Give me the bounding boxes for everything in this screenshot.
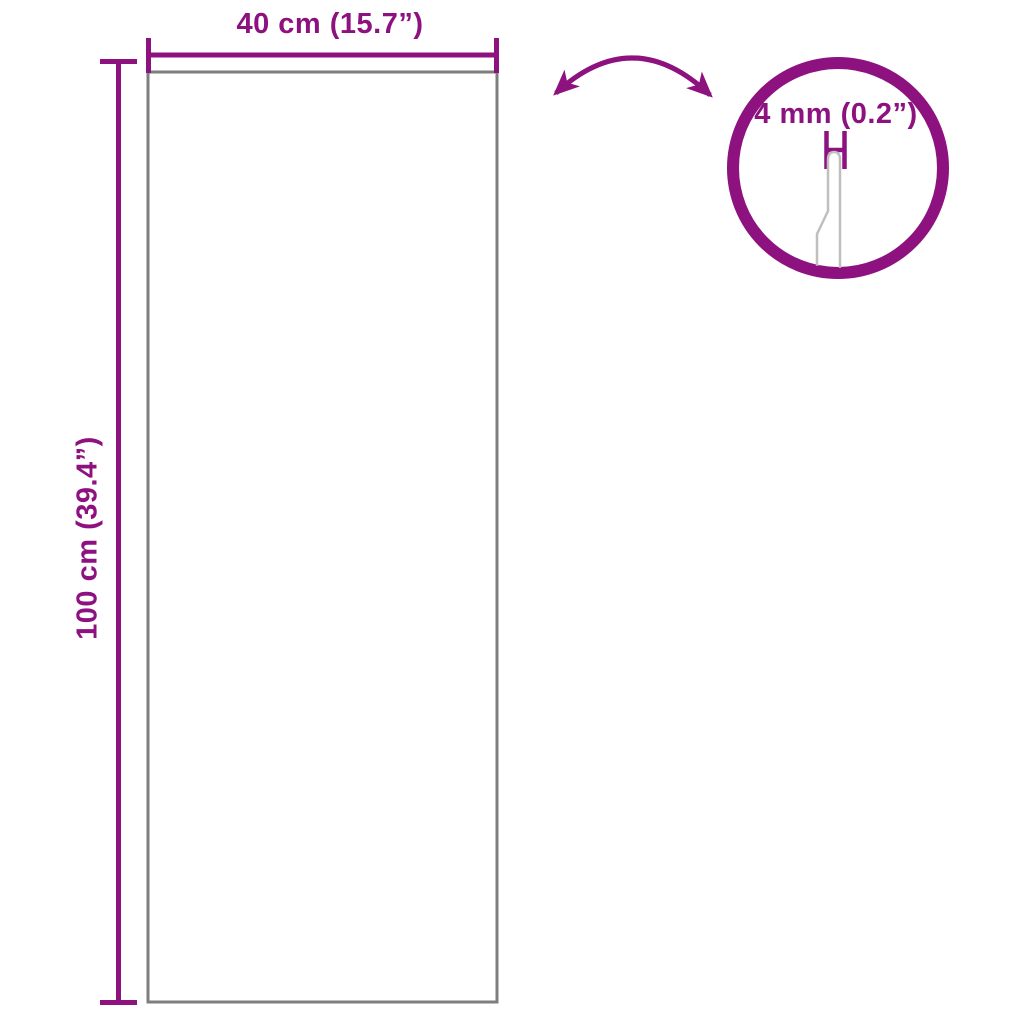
- edge-cross-section: [817, 152, 840, 280]
- thickness-dimension-label: 4 mm (0.2”): [754, 98, 917, 131]
- product-dimension-diagram: 40 cm (15.7”) 100 cm (39.4”) 4 mm (0.2”): [0, 0, 1024, 1024]
- curved-double-arrow-icon: [556, 58, 710, 95]
- product-outline-rect: [148, 72, 497, 1002]
- height-dimension-line: [100, 59, 137, 1005]
- width-dimension-line: [146, 38, 499, 73]
- height-dimension-label: 100 cm (39.4”): [72, 436, 105, 640]
- diagram-canvas: [0, 0, 1024, 1024]
- edge-cross-section-profile: [817, 152, 840, 280]
- width-dimension-label: 40 cm (15.7”): [236, 8, 423, 41]
- zoom-circle-icon: [733, 63, 943, 273]
